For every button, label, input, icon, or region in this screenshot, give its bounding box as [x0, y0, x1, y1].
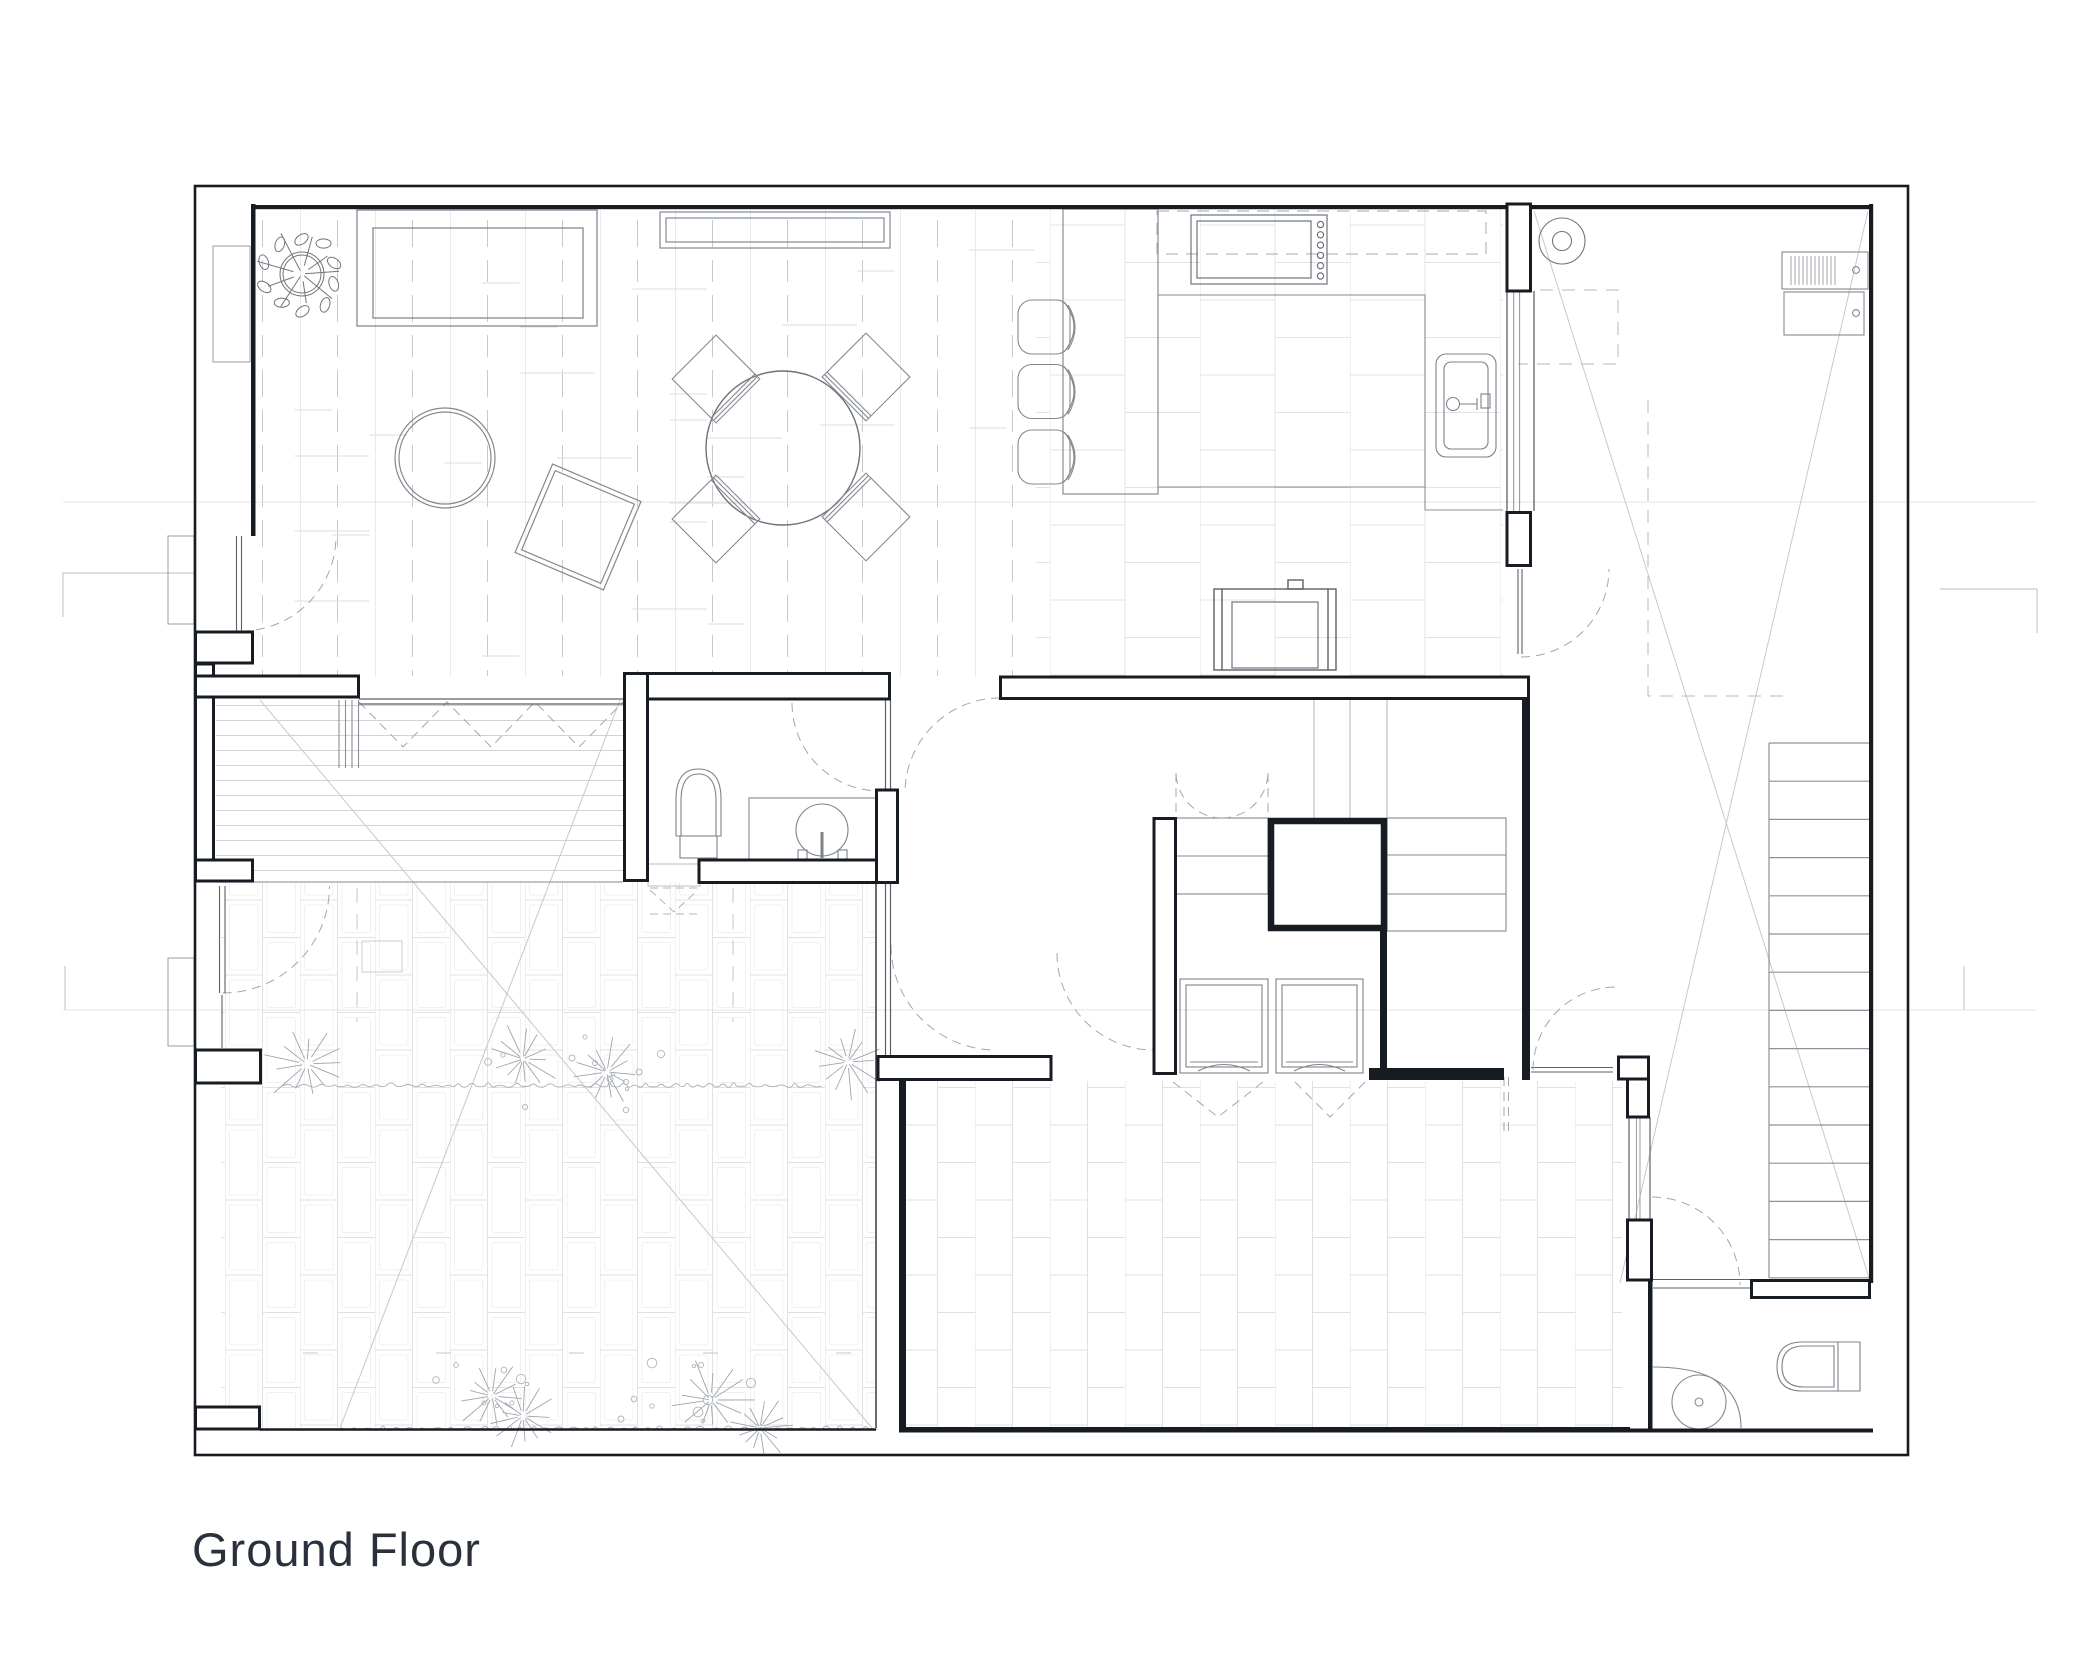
svg-text:Ground Floor: Ground Floor — [192, 1523, 481, 1576]
